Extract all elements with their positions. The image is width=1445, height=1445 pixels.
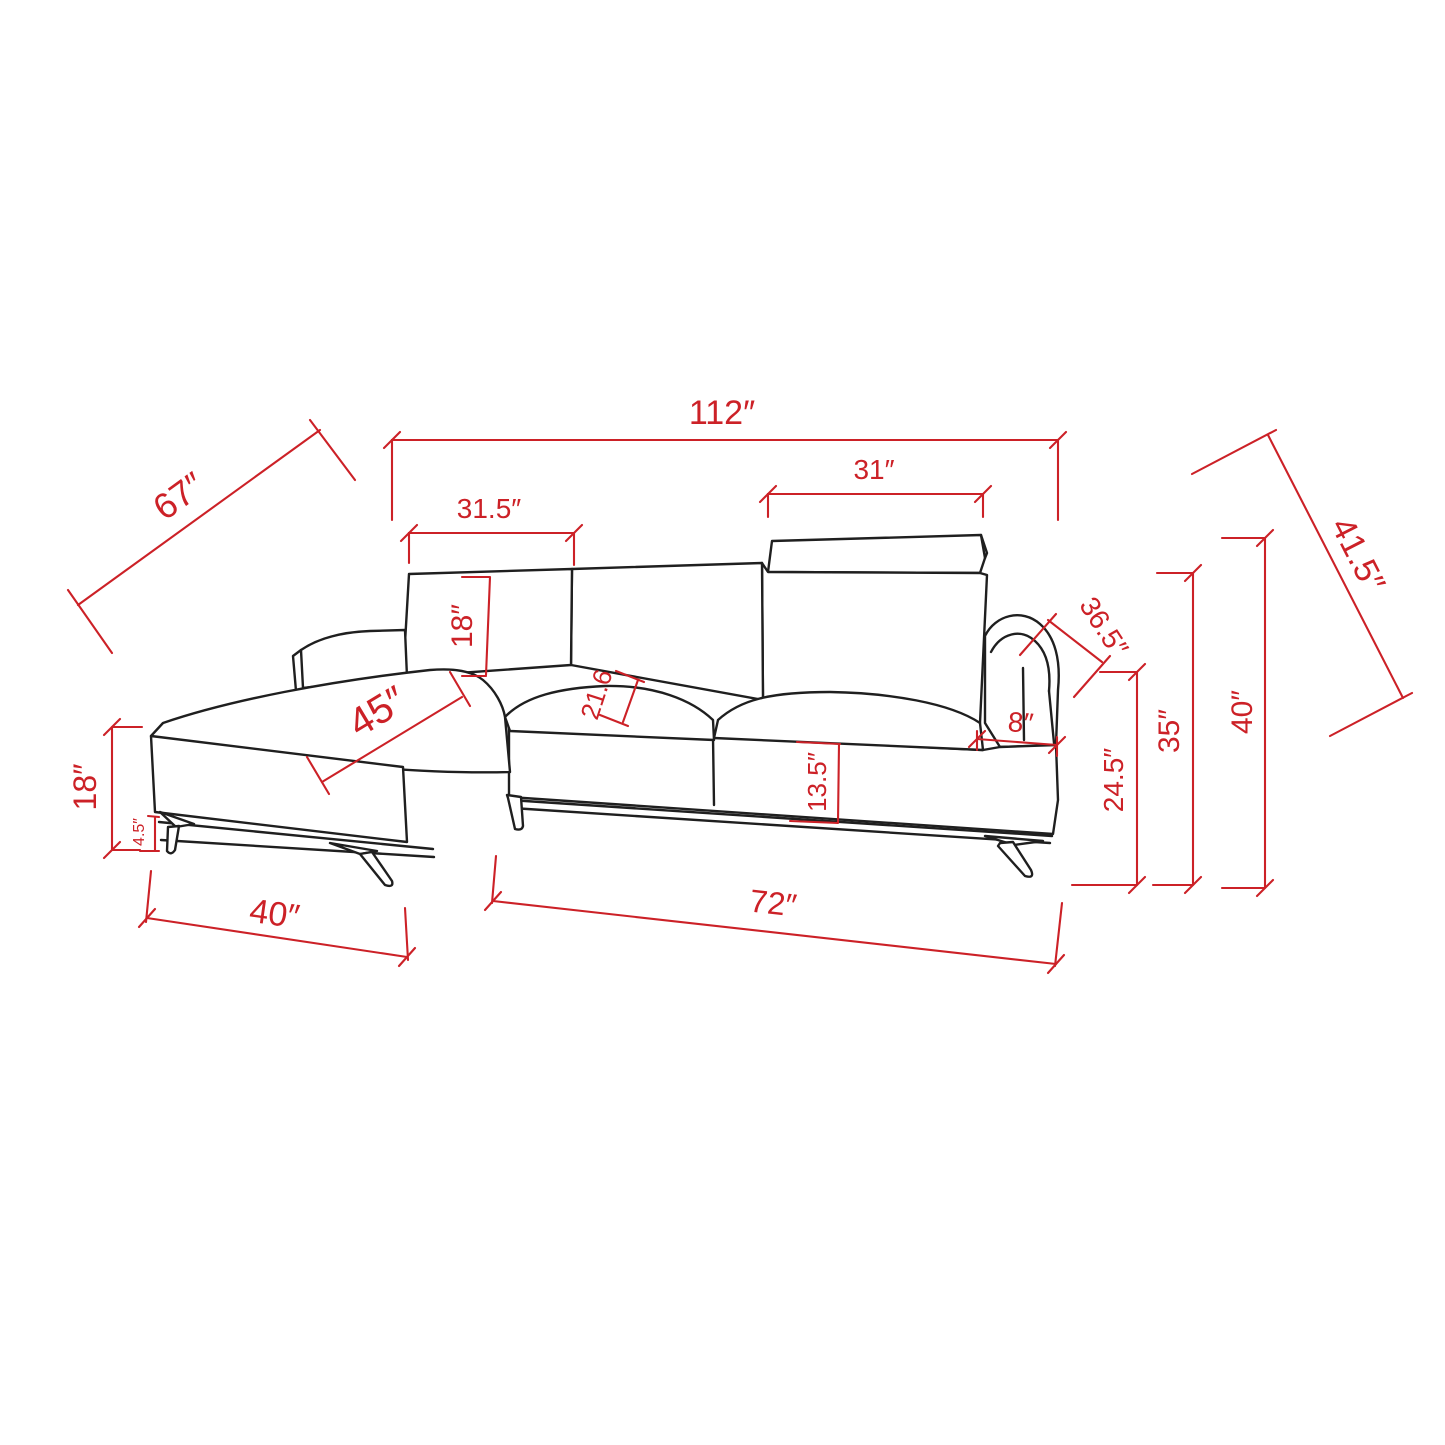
dim-arm-height-label: 24.5″ [1098,748,1129,812]
dim-overall-height: 40″ [1222,530,1273,896]
dim-arm-diagonal-label: 36.5″ [1073,591,1134,662]
dim-back-cushion-height-label: 18″ [446,604,479,648]
base-section-seam [713,737,714,805]
dim-chaise-width-label: 40″ [247,892,302,937]
dimension-diagram-page: 112″ 67″ 31.5″ 31″ 41.5″ 18 [0,0,1445,1445]
chaise-leg-left [167,826,179,853]
sofa-leg-middle [507,795,523,830]
dim-left-back-cushion-width: 31.5″ [401,493,582,565]
sofa-leg-right [998,842,1032,877]
dim-chaise-outer-diagonal-label: 67″ [145,464,212,528]
dim-sofa-length: 72″ [485,856,1064,973]
dim-sofa-length-label: 72″ [748,883,799,924]
dim-leg-height: 4.5″ [131,816,159,851]
headrest [768,535,987,573]
dim-leg-height-label: 4.5″ [131,818,148,846]
dim-right-outer-diagonal-label: 41.5″ [1323,512,1392,599]
dim-arm-width-label: 8″ [1007,706,1035,739]
dim-chaise-outer-diagonal: 67″ [68,420,355,653]
dim-overall-width-label: 112″ [689,394,755,432]
dim-overall-height-label: 40″ [1226,690,1259,734]
dim-base-front-height-label: 13.5″ [802,752,832,812]
dim-back-height-label: 35″ [1153,709,1186,753]
dim-chaise-seat-height-label: 18″ [67,764,103,811]
dim-headrest-width-label: 31″ [853,454,894,485]
sofa-dimension-drawing: 112″ 67″ 31.5″ 31″ 41.5″ 18 [0,0,1445,1445]
dim-back-height: 35″ [1153,565,1201,893]
chaise-rail-bottom [161,840,434,857]
dim-arm-height: 24.5″ [1072,664,1145,893]
dim-headrest-width: 31″ [760,454,991,517]
dim-chaise-width: 40″ [139,871,415,966]
dim-left-back-cushion-width-label: 31.5″ [457,493,521,524]
chaise-leg-right [360,852,392,886]
dim-right-outer-diagonal: 41.5″ [1192,430,1412,736]
